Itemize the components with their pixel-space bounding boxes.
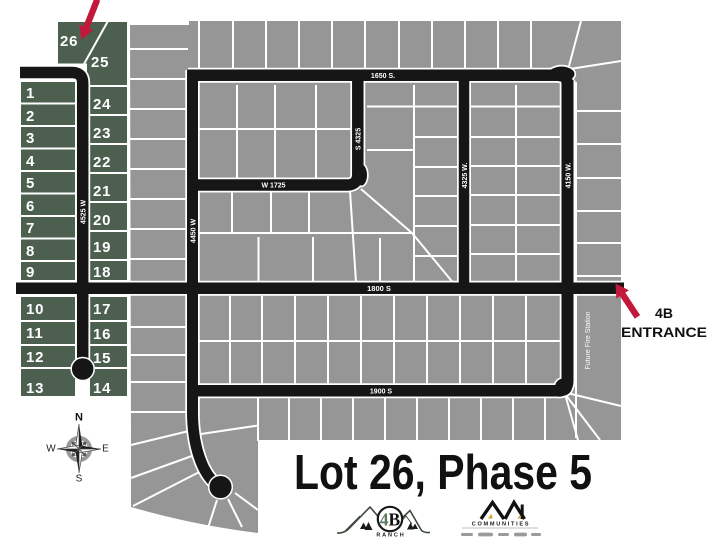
svg-text:9: 9 [26,264,35,281]
svg-text:1: 1 [26,85,35,102]
svg-text:15: 15 [93,350,111,367]
svg-text:21: 21 [93,183,111,200]
svg-text:ENTRANCE: ENTRANCE [621,325,707,340]
svg-text:13: 13 [26,380,44,397]
svg-text:19: 19 [93,239,111,256]
svg-text:4150 W.: 4150 W. [565,163,572,189]
svg-text:Lot 26, Phase 5: Lot 26, Phase 5 [294,446,592,500]
svg-text:22: 22 [93,154,111,171]
svg-text:Future Fire Station: Future Fire Station [585,311,592,369]
svg-text:4325 W.: 4325 W. [462,163,469,189]
svg-text:N: N [75,412,83,424]
svg-text:1900 S: 1900 S [370,389,393,396]
svg-text:25: 25 [91,54,109,71]
svg-text:4: 4 [26,153,35,170]
svg-text:26: 26 [60,33,78,50]
svg-text:W: W [46,444,56,455]
svg-text:17: 17 [93,301,111,318]
svg-text:5: 5 [26,175,35,192]
svg-text:4525 W: 4525 W [80,200,87,225]
svg-text:23: 23 [93,125,111,142]
svg-text:16: 16 [93,326,111,343]
svg-text:E: E [102,444,109,455]
svg-text:4B: 4B [655,305,673,321]
svg-text:3: 3 [26,130,35,147]
svg-text:11: 11 [26,325,43,342]
svg-text:6: 6 [26,198,35,215]
svg-text:7: 7 [26,220,35,237]
svg-text:S: S [76,474,83,485]
svg-text:COMMUNITIES: COMMUNITIES [472,522,530,528]
svg-text:S 4325: S 4325 [355,128,362,150]
svg-text:24: 24 [93,96,111,113]
svg-text:8: 8 [26,243,35,260]
svg-text:10: 10 [26,301,44,318]
svg-text:12: 12 [26,349,44,366]
svg-text:4B: 4B [380,510,401,530]
svg-text:RANCH: RANCH [376,533,405,539]
svg-text:14: 14 [93,380,111,397]
svg-text:2: 2 [26,108,35,125]
svg-text:4450 W: 4450 W [190,219,197,244]
svg-text:20: 20 [93,212,111,229]
svg-text:W 1725: W 1725 [261,183,285,190]
svg-text:1650 S.: 1650 S. [371,73,395,80]
svg-text:1800 S: 1800 S [367,284,391,293]
svg-text:18: 18 [93,264,111,281]
